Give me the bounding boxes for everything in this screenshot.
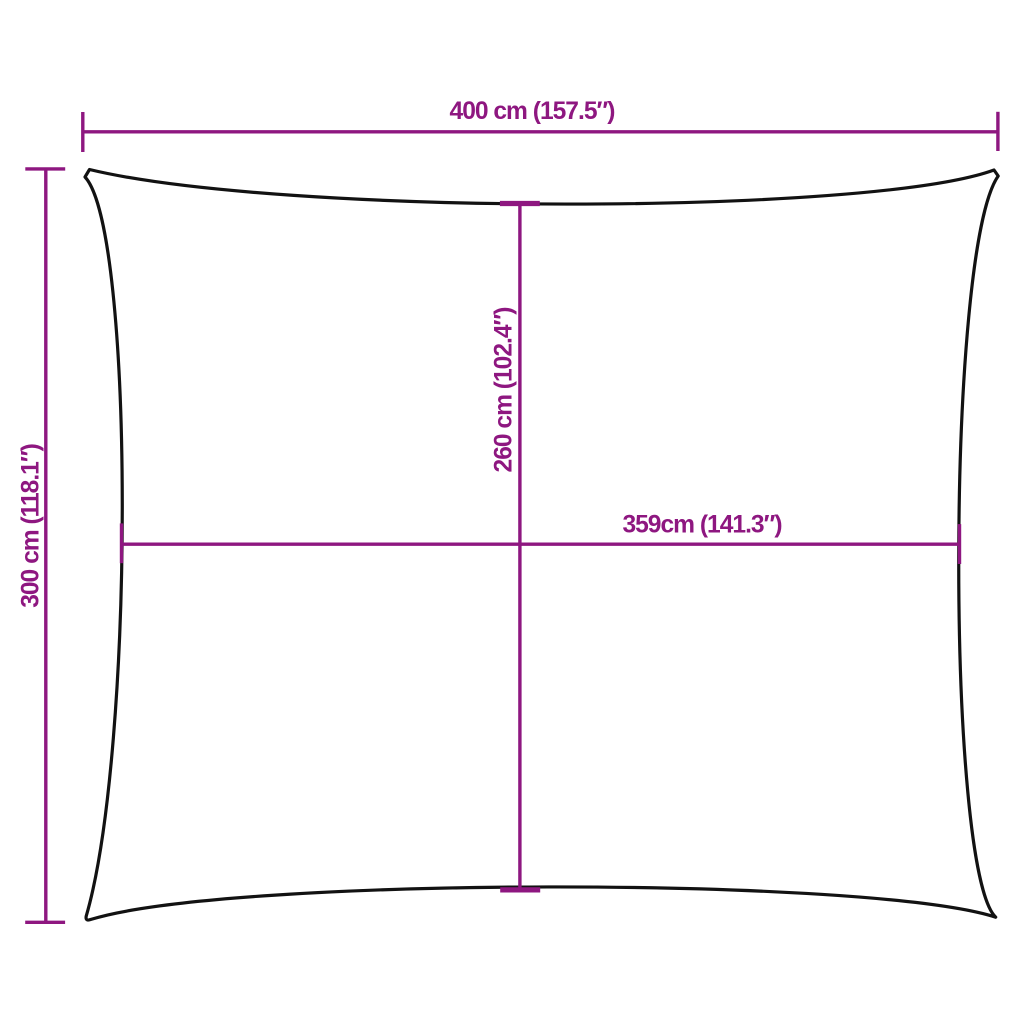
- svg-text:260 cm (102.4″): 260 cm (102.4″): [491, 308, 518, 473]
- svg-text:300 cm (118.1″): 300 cm (118.1″): [18, 444, 45, 608]
- svg-text:359cm (141.3″): 359cm (141.3″): [622, 511, 781, 538]
- svg-text:400 cm (157.5″): 400 cm (157.5″): [450, 98, 615, 125]
